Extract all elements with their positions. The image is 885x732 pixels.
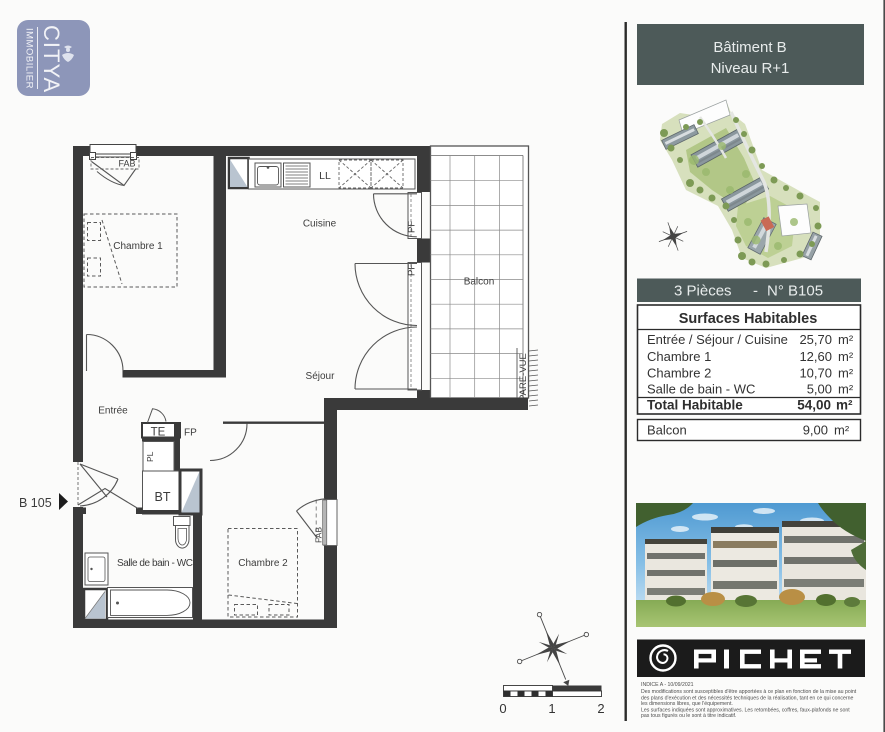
svg-text:m²: m² — [836, 398, 853, 413]
svg-text:pas tous figurés ou le sont à: pas tous figurés ou le sont à titre indi… — [641, 713, 736, 719]
svg-text:Total Habitable: Total Habitable — [647, 398, 743, 413]
svg-text:Cuisine: Cuisine — [303, 219, 337, 230]
svg-text:3 Pièces: 3 Pièces — [674, 283, 732, 300]
svg-text:Bâtiment B: Bâtiment B — [713, 39, 786, 56]
svg-text:LL: LL — [319, 170, 331, 182]
svg-text:PARE-VUE: PARE-VUE — [518, 353, 529, 401]
svg-text:TE: TE — [151, 427, 166, 439]
svg-text:FAB: FAB — [314, 527, 324, 543]
svg-text:Balcon: Balcon — [464, 277, 495, 288]
svg-text:Chambre 2: Chambre 2 — [647, 366, 711, 381]
svg-text:m²: m² — [838, 366, 854, 381]
svg-text:Niveau R+1: Niveau R+1 — [711, 60, 790, 77]
svg-text:Des modifications sont suscept: Des modifications sont susceptibles d'êt… — [641, 689, 857, 695]
svg-text:IMMOBILIER: IMMOBILIER — [24, 28, 35, 89]
svg-text:Surfaces Habitables: Surfaces Habitables — [679, 311, 818, 327]
svg-text:0: 0 — [499, 701, 506, 716]
svg-text:12,60: 12,60 — [799, 349, 832, 364]
svg-text:Salle de bain - WC: Salle de bain - WC — [647, 382, 755, 397]
svg-text:INDICE A - 10/09/2021: INDICE A - 10/09/2021 — [641, 682, 694, 688]
svg-text:les dimensions libres, que l'é: les dimensions libres, que l'équipement. — [641, 701, 733, 707]
svg-text:10,70: 10,70 — [799, 366, 832, 381]
svg-text:m²: m² — [838, 382, 854, 397]
svg-text:PF: PF — [407, 221, 418, 233]
svg-text:Chambre 1: Chambre 1 — [113, 241, 163, 252]
svg-text:m²: m² — [838, 349, 854, 364]
svg-text:25,70: 25,70 — [799, 332, 832, 347]
svg-text:Salle de bain - WC: Salle de bain - WC — [117, 558, 193, 569]
svg-text:m²: m² — [834, 423, 850, 438]
svg-text:B 105: B 105 — [19, 496, 52, 510]
svg-text:N° B105: N° B105 — [767, 283, 823, 300]
svg-text:FAB: FAB — [118, 159, 135, 169]
svg-text:Chambre 1: Chambre 1 — [647, 349, 711, 364]
svg-text:m²: m² — [838, 332, 854, 347]
svg-text:5,00: 5,00 — [807, 382, 832, 397]
svg-text:BT: BT — [155, 490, 171, 504]
svg-text:Balcon: Balcon — [647, 423, 687, 438]
svg-text:-: - — [753, 283, 758, 300]
svg-text:CITYA: CITYA — [39, 25, 64, 93]
svg-text:Séjour: Séjour — [306, 371, 336, 382]
svg-text:Chambre 2: Chambre 2 — [238, 558, 288, 569]
svg-text:1: 1 — [548, 701, 555, 716]
svg-text:PL: PL — [145, 451, 155, 462]
svg-text:Entrée: Entrée — [98, 406, 128, 417]
svg-text:2: 2 — [597, 701, 604, 716]
svg-text:FP: FP — [184, 428, 197, 439]
svg-text:PF: PF — [407, 264, 418, 276]
svg-text:9,00: 9,00 — [803, 423, 828, 438]
svg-text:Entrée / Séjour / Cuisine: Entrée / Séjour / Cuisine — [647, 332, 788, 347]
svg-text:54,00: 54,00 — [797, 398, 831, 413]
